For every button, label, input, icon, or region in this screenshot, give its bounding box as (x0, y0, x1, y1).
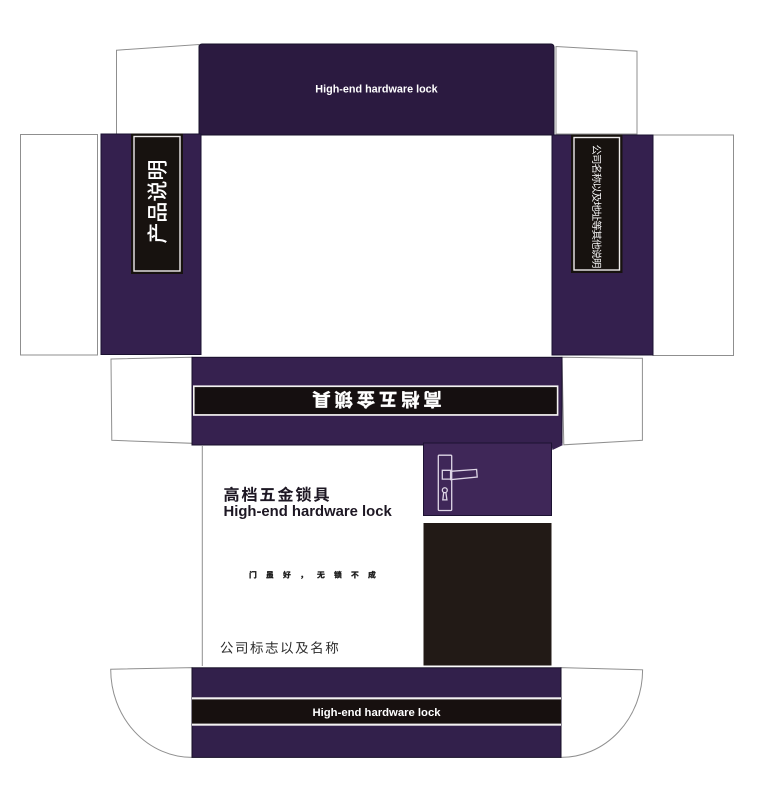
svg-text:High-end hardware lock: High-end hardware lock (315, 83, 438, 95)
svg-text:High-end hardware lock: High-end hardware lock (224, 504, 393, 520)
svg-text:High-end hardware lock: High-end hardware lock (312, 707, 441, 719)
